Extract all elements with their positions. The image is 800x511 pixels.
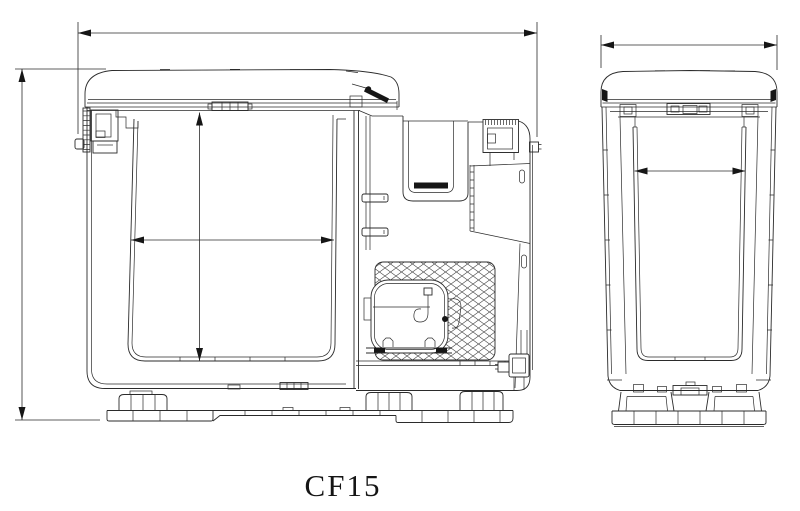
foot-rear: [460, 392, 503, 411]
side-section-view: [75, 69, 542, 422]
dim-overall-length: [78, 22, 537, 137]
control-panel: [483, 120, 519, 167]
compressor: [364, 280, 461, 353]
dim-end-inner-width: [635, 168, 746, 175]
end-inner-liner: [633, 117, 746, 361]
end-view: [601, 71, 777, 427]
end-base-and-feet: [612, 382, 766, 427]
end-body-shell: [602, 107, 776, 391]
dim-inner-length: [131, 237, 334, 244]
drawing-sheet: CF15: [0, 0, 800, 511]
dim-inner-height: [196, 113, 203, 362]
foot-front: [119, 391, 167, 411]
dim-end-overall-width: [601, 35, 777, 70]
technical-drawing-svg: [0, 0, 800, 511]
end-foot-left: [619, 385, 675, 412]
front-latch: [75, 108, 138, 153]
fuse-connector: [530, 142, 542, 152]
lid-hinge: [350, 84, 389, 107]
power-socket: [495, 330, 529, 390]
end-bottom-latch: [673, 382, 707, 395]
end-foot-right: [706, 385, 762, 412]
inner-liner: [128, 115, 346, 361]
foot-middle: [366, 393, 412, 411]
handle-recess: [403, 116, 468, 201]
model-label: CF15: [305, 468, 382, 504]
lid: [85, 69, 399, 110]
end-lid: [601, 71, 777, 108]
base-and-feet: [107, 391, 513, 423]
end-rim: [610, 104, 768, 118]
dim-overall-height: [15, 69, 106, 420]
